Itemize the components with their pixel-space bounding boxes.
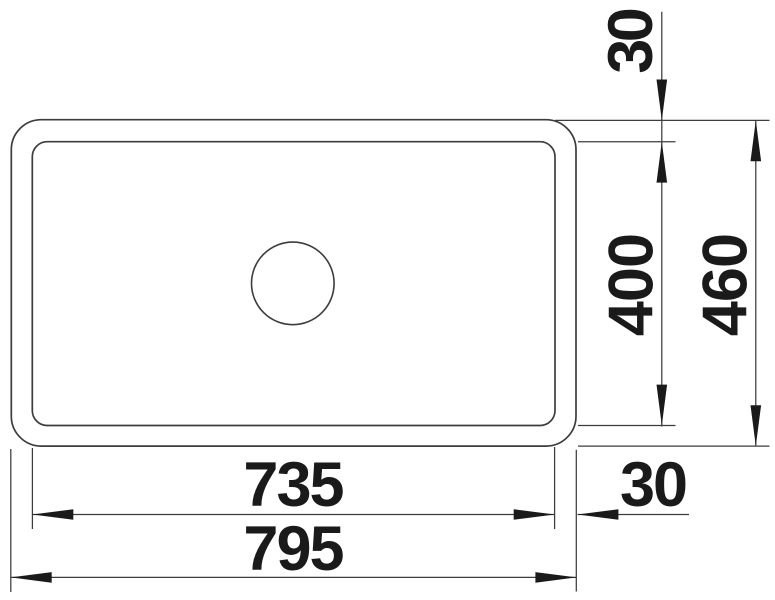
svg-text:30: 30 (596, 7, 666, 74)
svg-text:795: 795 (243, 514, 344, 584)
svg-text:460: 460 (691, 233, 761, 336)
svg-text:735: 735 (243, 450, 344, 520)
svg-text:400: 400 (597, 233, 667, 336)
svg-text:30: 30 (620, 450, 688, 520)
